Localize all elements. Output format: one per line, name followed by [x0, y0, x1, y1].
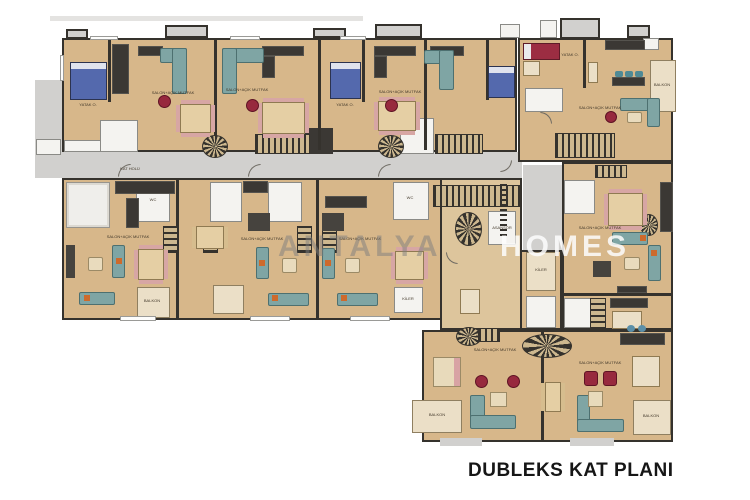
kitchen-counter	[620, 333, 665, 345]
window	[350, 316, 390, 321]
balcony	[165, 25, 208, 38]
unit-wall	[562, 293, 673, 296]
balcony	[560, 18, 600, 39]
closet-kiler	[526, 252, 556, 291]
staircase	[478, 328, 500, 342]
dining-table	[262, 102, 305, 134]
armchair	[624, 257, 640, 270]
spiral-stair	[455, 212, 482, 246]
armchair	[345, 258, 360, 273]
bar-stool	[638, 325, 646, 332]
cushion	[341, 295, 347, 301]
balcony	[64, 140, 104, 152]
sofa	[647, 98, 660, 127]
bar-stool	[635, 71, 643, 77]
window	[340, 36, 366, 40]
unit-wall	[316, 178, 319, 320]
balcony	[412, 400, 462, 433]
cushion	[651, 250, 657, 256]
double-bed	[523, 43, 560, 60]
plan-caption: DUBLEKS KAT PLANI	[468, 460, 674, 482]
ottoman	[490, 392, 507, 407]
unit-wall	[318, 38, 321, 150]
double-bed	[488, 66, 515, 98]
bedroom-wall	[108, 40, 111, 102]
bar-stool	[627, 325, 635, 332]
wardrobe	[66, 182, 110, 228]
bedroom-wall	[583, 40, 586, 88]
window	[120, 316, 156, 321]
bar-stool	[615, 71, 623, 77]
cushion	[325, 260, 331, 266]
roof-edge-strip	[50, 16, 363, 21]
kitchen-counter	[115, 181, 175, 194]
kitchen-counter	[243, 181, 268, 193]
sofa	[470, 415, 516, 429]
kitchen-counter	[374, 46, 416, 56]
cushion	[259, 260, 265, 266]
window	[250, 316, 290, 321]
cabinet	[460, 289, 480, 314]
dining-table	[138, 249, 164, 280]
round-side-table	[475, 375, 488, 388]
round-side-table	[605, 111, 617, 123]
kitchen-counter	[605, 40, 645, 50]
balcony	[375, 24, 422, 38]
kitchen-counter	[610, 298, 648, 308]
bathroom	[526, 296, 556, 328]
bathroom	[268, 182, 302, 222]
wardrobe	[632, 356, 660, 387]
bathroom	[564, 180, 595, 214]
closet	[588, 62, 598, 83]
balcony	[633, 400, 671, 435]
armchair	[603, 371, 617, 386]
dining-table	[395, 251, 424, 280]
staircase	[595, 165, 627, 178]
staircase	[435, 134, 483, 154]
balcony	[643, 38, 659, 50]
spiral-stair	[202, 135, 228, 158]
coffee-table	[593, 261, 611, 277]
balcony	[213, 285, 244, 314]
unit-wall	[214, 38, 217, 150]
round-side-table	[158, 95, 171, 108]
round-side-table	[385, 99, 398, 112]
round-side-table	[507, 375, 520, 388]
staircase	[297, 226, 312, 253]
window	[230, 36, 260, 40]
bar-stool	[625, 71, 633, 77]
dining-table	[180, 104, 211, 133]
balcony	[540, 20, 557, 38]
balcony	[440, 438, 482, 446]
window	[90, 36, 118, 40]
armchair	[282, 258, 297, 273]
dining-table	[545, 382, 561, 412]
kitchen-island	[612, 77, 645, 86]
double-bed	[330, 62, 361, 99]
armchair	[584, 371, 598, 386]
armchair	[627, 112, 642, 123]
balcony	[36, 139, 61, 155]
desk	[322, 213, 344, 231]
corridor-kat-holu	[35, 152, 522, 178]
sideboard	[66, 245, 75, 278]
terrace-railing	[500, 184, 507, 236]
bathroom	[210, 182, 242, 222]
double-bed	[70, 62, 107, 100]
cushion	[640, 235, 646, 241]
spiral-stair	[378, 135, 404, 158]
bedroom-wall	[362, 40, 365, 102]
balcony	[570, 438, 614, 446]
staircase	[255, 134, 310, 154]
sofa	[433, 357, 461, 387]
bathroom	[564, 298, 592, 328]
sofa	[222, 48, 237, 94]
kitchen-counter	[126, 198, 139, 228]
staircase	[555, 133, 615, 158]
kitchen-counter	[660, 182, 673, 232]
staircase	[590, 298, 606, 330]
cushion	[116, 258, 122, 264]
kitchen-counter	[112, 44, 129, 94]
cushion	[272, 295, 278, 301]
floor-plan-image: KAT HOLÜSALON+AÇIK MUTFAKSALON+AÇIK MUTF…	[0, 0, 750, 500]
balcony	[137, 287, 170, 318]
sofa	[172, 48, 187, 94]
kitchen-counter	[262, 46, 304, 56]
center-terrace	[523, 165, 562, 258]
cushion	[84, 295, 90, 301]
balcony	[66, 29, 88, 39]
bathroom	[393, 182, 429, 220]
balcony	[627, 25, 650, 38]
dining-table	[608, 193, 643, 226]
kitchen-counter	[325, 196, 367, 208]
balcony	[500, 24, 520, 38]
round-side-table	[246, 99, 259, 112]
closet-kiler	[394, 287, 423, 313]
bathroom	[525, 88, 563, 112]
kitchen-counter	[617, 286, 647, 293]
nightstand	[523, 61, 540, 76]
kitchen-counter	[374, 56, 387, 78]
sofa	[577, 419, 624, 432]
bathroom	[100, 120, 138, 152]
armchair	[88, 257, 103, 271]
sofa	[439, 50, 454, 90]
main-staircase	[433, 185, 521, 207]
spiral-stair	[522, 334, 572, 358]
staircase	[163, 226, 178, 253]
window	[60, 55, 64, 81]
desk	[248, 213, 270, 231]
dining-table	[196, 226, 224, 249]
ottoman	[588, 391, 603, 407]
